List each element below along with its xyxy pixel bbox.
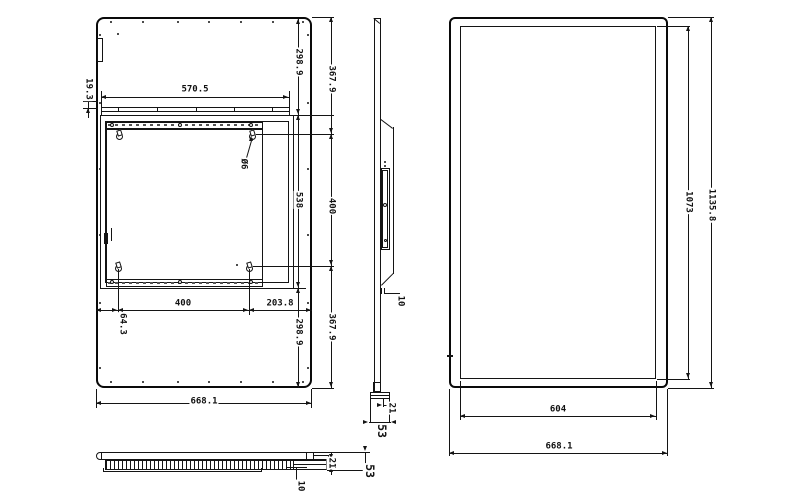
dim-arrow	[306, 308, 311, 312]
leader-arrow	[249, 136, 253, 141]
dim-label-step-depth: 10	[396, 295, 405, 308]
dim-label-overall-width: 668.1	[189, 398, 218, 407]
dim-label-step-depth: 21	[327, 457, 336, 470]
dim-label-rail-width: 570.5	[180, 86, 209, 95]
dim-label-hole-to-left-edge: 64.3	[118, 312, 127, 336]
dim-arrow	[96, 401, 101, 405]
dim-arrow	[283, 95, 288, 99]
dim-arrow	[391, 420, 396, 424]
dim-label-overall-depth: 53	[375, 423, 387, 439]
dim-arrow	[363, 420, 368, 424]
dim-arrow	[709, 382, 713, 387]
object-line	[306, 452, 307, 460]
object-line	[103, 468, 104, 472]
object-line	[293, 464, 327, 465]
dim-arrow	[686, 373, 690, 378]
dim-arrow	[296, 288, 300, 293]
dim-arrow	[306, 401, 311, 405]
dim-arrow	[296, 19, 300, 24]
dim-label-bracket-height: 538	[294, 191, 303, 209]
dim-arrow	[296, 109, 300, 114]
dim-label-mount-depth: 21	[387, 402, 396, 415]
dim-label-top-margin: 298.9	[294, 47, 303, 76]
technical-drawing-sheet: Ø6 570.5 19.3 298.9 538 298.9	[0, 0, 800, 500]
ext-line	[314, 452, 370, 453]
dim-arrow	[249, 308, 254, 312]
dim-arrow	[329, 260, 333, 265]
dim-arrow	[662, 451, 667, 455]
dim-arrow	[377, 403, 382, 407]
dim-arrow	[329, 382, 333, 387]
dim-arrow	[296, 282, 300, 287]
dim-arrow	[296, 115, 300, 120]
dim-label-vesa-top-offset: 367.9	[327, 64, 336, 93]
dim-arrow	[296, 382, 300, 387]
vent-grille	[105, 460, 294, 470]
dim-label-hole-to-right-edge: 203.8	[265, 300, 294, 309]
bottom-view: 10 21 53	[0, 0, 800, 500]
dim-arrow	[709, 17, 713, 22]
dim-label-display-width: 604	[549, 406, 567, 415]
dim-label-overall-depth: 53	[363, 463, 375, 479]
dim-label-bottom-margin: 298.9	[294, 317, 303, 346]
dim-arrow	[86, 108, 90, 113]
dim-arrow	[650, 414, 655, 418]
dim-label-grille-depth: 10	[296, 480, 305, 493]
object-line	[261, 468, 262, 472]
dim-arrow	[329, 17, 333, 22]
dim-label-hole-diameter: Ø6	[239, 158, 248, 171]
dim-label-overall-height: 1135.8	[707, 188, 716, 223]
dim-arrow	[329, 128, 333, 133]
dim-arrow	[243, 308, 248, 312]
dim-label-vesa-vertical-pitch: 400	[327, 197, 336, 215]
dim-arrow	[101, 95, 106, 99]
dim-label-overall-width: 668.1	[544, 443, 573, 452]
dim-arrow	[96, 308, 101, 312]
panel-slab	[96, 452, 314, 460]
dim-label-vesa-bottom-offset: 367.9	[327, 312, 336, 341]
dim-arrow	[363, 446, 367, 451]
dim-label-vesa-horizontal-pitch: 400	[174, 300, 192, 309]
object-line	[103, 471, 262, 472]
dim-arrow	[686, 26, 690, 31]
dim-label-side-offset: 19.3	[84, 77, 93, 101]
dim-arrow	[449, 451, 454, 455]
dim-arrow	[329, 266, 333, 271]
object-line	[101, 452, 102, 460]
dim-arrow	[329, 134, 333, 139]
dim-arrow	[460, 414, 465, 418]
dim-label-display-height: 1073	[684, 190, 693, 214]
rear-step	[293, 460, 327, 470]
ext-line	[287, 467, 307, 468]
dim-arrow	[112, 308, 117, 312]
